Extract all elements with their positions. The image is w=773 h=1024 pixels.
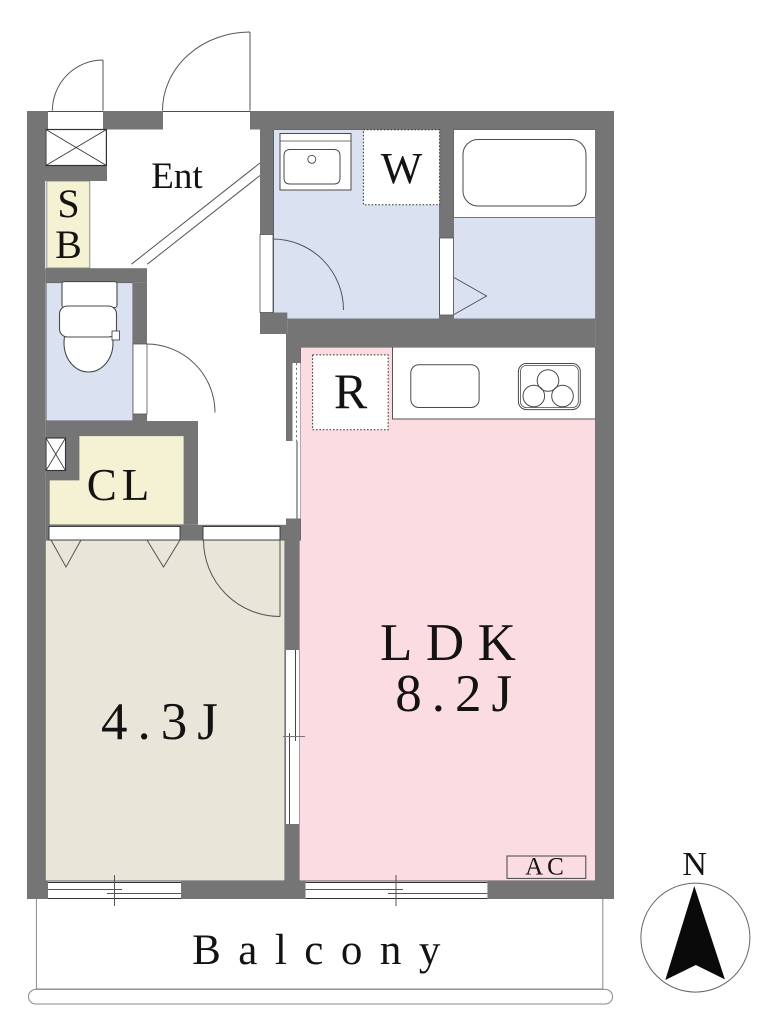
svg-text:W: W	[381, 144, 423, 193]
svg-text:CL: CL	[87, 460, 155, 510]
svg-text:AC: AC	[525, 854, 568, 881]
svg-text:Balcony: Balcony	[192, 927, 458, 974]
svg-text:Ent: Ent	[151, 156, 203, 197]
svg-text:4.3J: 4.3J	[101, 693, 228, 751]
svg-text:LDK: LDK	[380, 614, 529, 672]
svg-text:N: N	[682, 846, 707, 883]
svg-text:R: R	[334, 363, 368, 419]
svg-text:8.2J: 8.2J	[395, 665, 522, 723]
svg-text:B: B	[55, 222, 82, 267]
svg-text:S: S	[57, 181, 79, 226]
